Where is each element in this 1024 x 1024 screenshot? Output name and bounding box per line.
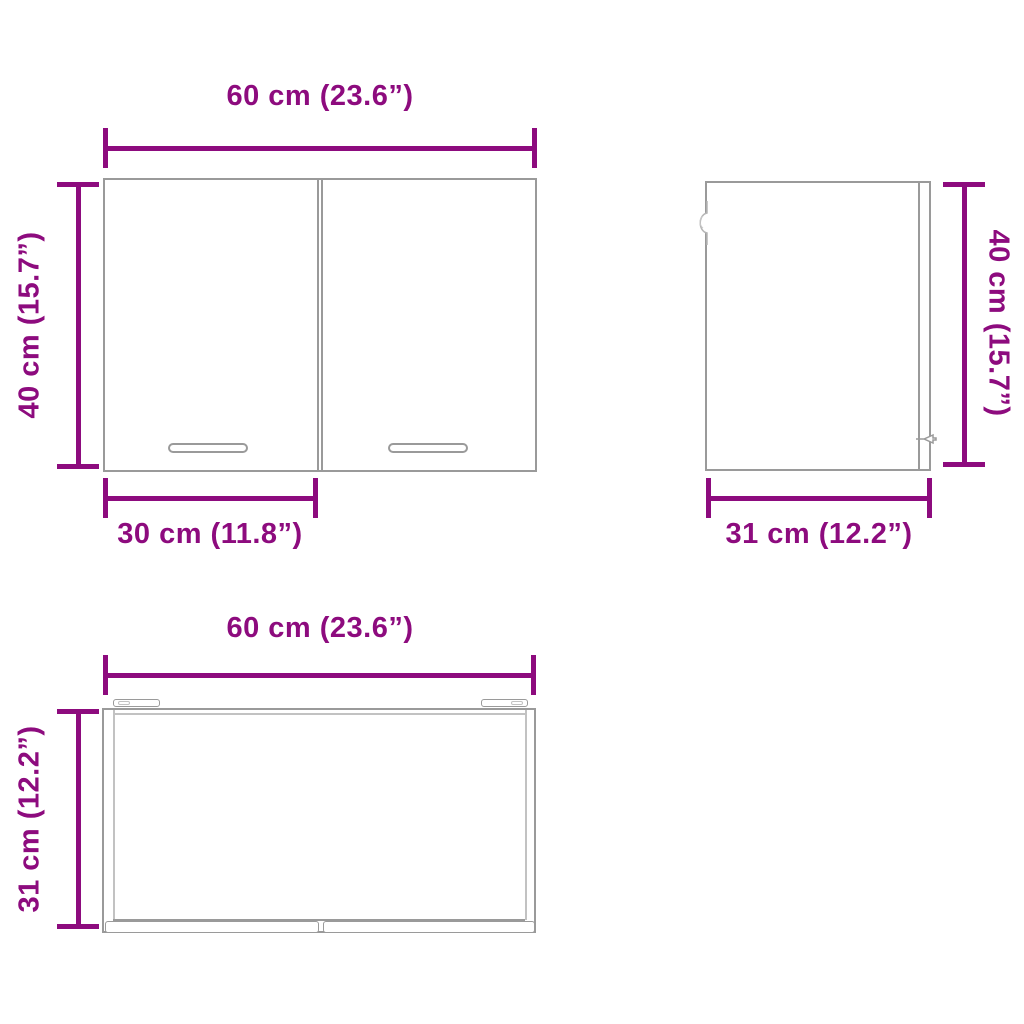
door-handle-icon <box>168 443 248 453</box>
hinge-detail <box>511 701 523 705</box>
dimension-tick <box>927 478 932 518</box>
top-depth-dimension-line <box>57 709 99 929</box>
front-height-label: 40 cm (15.7”) <box>14 231 47 418</box>
top-width-label: 60 cm (23.6”) <box>103 612 537 645</box>
front-width-dimension-line <box>103 128 537 168</box>
cabinet-top-view <box>102 708 536 933</box>
front-width-label: 60 cm (23.6”) <box>103 80 537 113</box>
dimension-line <box>962 182 967 467</box>
door-gap-line <box>321 180 323 470</box>
door-handle-icon <box>388 443 468 453</box>
hinge-icon <box>481 699 528 707</box>
cabinet-front-view <box>103 178 537 472</box>
dimension-line <box>103 673 536 678</box>
dimension-line <box>103 496 318 501</box>
top-width-dimension-line <box>103 655 536 695</box>
door-top-edge <box>323 921 535 933</box>
hinge-detail <box>118 701 130 705</box>
side-height-label: 40 cm (15.7”) <box>982 229 1015 416</box>
door-top-edge <box>105 921 319 933</box>
back-panel-line <box>113 713 525 715</box>
front-door-width-label: 30 cm (11.8”) <box>80 518 340 551</box>
front-height-dimension-line <box>57 182 99 469</box>
dimension-diagram: 60 cm (23.6”) 40 cm (15.7”) 30 cm (11.8”… <box>0 0 1024 1024</box>
dimension-tick <box>57 924 99 929</box>
hinge-icon <box>113 699 160 707</box>
side-height-dimension-line <box>943 182 985 467</box>
dimension-line <box>103 146 537 151</box>
side-depth-label: 31 cm (12.2”) <box>694 518 944 551</box>
front-door-width-dimension-line <box>103 478 318 518</box>
dimension-line <box>76 709 81 929</box>
dimension-tick <box>531 655 536 695</box>
dimension-line <box>706 496 932 501</box>
cabinet-side-view <box>705 181 931 471</box>
side-panel-line <box>525 710 527 920</box>
side-depth-dimension-line <box>706 478 932 518</box>
door-front-panel-line <box>918 183 920 469</box>
dimension-tick <box>532 128 537 168</box>
knob-icon <box>914 430 938 448</box>
door-gap-line <box>317 180 319 470</box>
dimension-tick <box>313 478 318 518</box>
side-panel-line <box>113 710 115 920</box>
top-depth-label: 31 cm (12.2”) <box>14 725 47 912</box>
hinge-icon <box>693 200 713 246</box>
dimension-line <box>76 182 81 469</box>
dimension-tick <box>943 462 985 467</box>
dimension-tick <box>57 464 99 469</box>
